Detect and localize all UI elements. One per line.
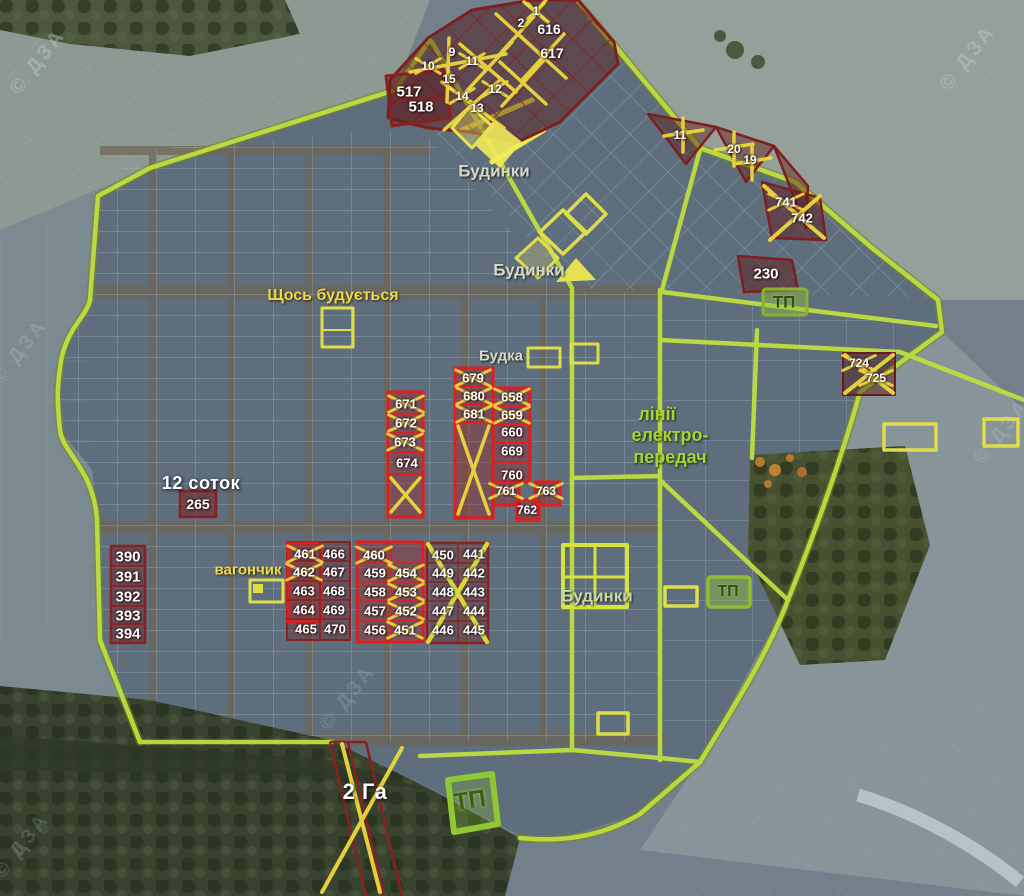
plot-number-518: 518 — [408, 100, 433, 115]
plot-number-763: 763 — [536, 485, 556, 497]
plot-number-14: 14 — [455, 90, 468, 102]
plot-number-679: 679 — [462, 372, 484, 385]
plot-number-469: 469 — [323, 604, 345, 617]
plot-number-13: 13 — [470, 102, 483, 114]
plot-number-741: 741 — [775, 196, 797, 209]
plot-number-724: 724 — [849, 357, 869, 369]
plot-number-760: 760 — [501, 469, 523, 482]
plot-number-443: 443 — [463, 586, 485, 599]
plot-number-467: 467 — [323, 566, 345, 579]
area-label: вагончик — [214, 563, 281, 578]
area-label: Будинки — [493, 262, 565, 279]
area-label: Будка — [479, 349, 523, 364]
plot-number-394: 394 — [115, 627, 140, 642]
plot-number-517: 517 — [396, 85, 421, 100]
plot-number-658: 658 — [501, 391, 523, 404]
plot-number-450: 450 — [432, 549, 454, 562]
area-label: Щось будується — [267, 288, 398, 304]
plot-number-671: 671 — [395, 398, 417, 411]
plot-number-390: 390 — [115, 550, 140, 565]
area-label: електро- — [631, 426, 708, 444]
plot-number-674: 674 — [396, 457, 418, 470]
plot-number-457: 457 — [364, 605, 386, 618]
plot-number-680: 680 — [463, 390, 485, 403]
plot-number-453: 453 — [395, 586, 417, 599]
plot-number-673: 673 — [394, 436, 416, 449]
plot-number-470: 470 — [324, 623, 346, 636]
watermark: © ДЗА — [5, 25, 70, 100]
plot-number-11: 11 — [674, 129, 687, 141]
watermark: © ДЗА — [969, 395, 1024, 470]
plot-number-456: 456 — [364, 624, 386, 637]
plot-number-9: 9 — [449, 46, 456, 58]
plot-number-669: 669 — [501, 445, 523, 458]
plot-number-10: 10 — [421, 60, 434, 72]
plot-number-20: 20 — [727, 143, 740, 155]
plot-number-681: 681 — [463, 408, 485, 421]
plot-number-458: 458 — [364, 586, 386, 599]
plot-number-452: 452 — [395, 605, 417, 618]
plot-number-468: 468 — [323, 585, 345, 598]
area-label: 2 Га — [343, 781, 388, 803]
area-label: Будинки — [458, 163, 530, 180]
plot-number-462: 462 — [293, 566, 315, 579]
plot-number-465: 465 — [295, 623, 317, 636]
plot-number-19: 19 — [743, 154, 756, 166]
plot-number-12: 12 — [488, 83, 501, 95]
area-label: ТП — [453, 787, 488, 815]
plot-number-616: 616 — [537, 22, 560, 36]
watermark: © ДЗА — [935, 21, 1000, 96]
watermark: © ДЗА — [315, 661, 380, 736]
plot-number-454: 454 — [395, 567, 417, 580]
plot-number-762: 762 — [517, 504, 537, 516]
plot-number-446: 446 — [432, 624, 454, 637]
plot-number-230: 230 — [753, 267, 778, 282]
plot-number-441: 441 — [463, 548, 485, 561]
plot-number-444: 444 — [463, 605, 485, 618]
plot-number-447: 447 — [432, 605, 454, 618]
plot-number-742: 742 — [791, 212, 813, 225]
area-label: Будинки — [561, 588, 633, 605]
plot-number-659: 659 — [501, 409, 523, 422]
plot-number-1: 1 — [533, 5, 540, 17]
plot-number-265: 265 — [186, 497, 209, 511]
plot-number-761: 761 — [496, 485, 516, 497]
plot-number-445: 445 — [463, 624, 485, 637]
plot-number-463: 463 — [293, 585, 315, 598]
plot-number-15: 15 — [442, 73, 455, 85]
plot-number-451: 451 — [394, 624, 416, 637]
plot-number-442: 442 — [463, 567, 485, 580]
plot-number-464: 464 — [293, 604, 315, 617]
plot-number-391: 391 — [115, 570, 140, 585]
area-label: передач — [633, 448, 706, 466]
plot-number-466: 466 — [323, 548, 345, 561]
plot-number-672: 672 — [395, 417, 417, 430]
plot-number-449: 449 — [432, 567, 454, 580]
area-label: лінії — [638, 405, 675, 423]
plot-number-393: 393 — [115, 609, 140, 624]
plot-number-11: 11 — [466, 55, 479, 67]
watermark: © ДЗА — [0, 315, 53, 390]
plot-number-461: 461 — [294, 548, 316, 561]
map-label-layer: © ДЗА © ДЗА © ДЗА © ДЗА © ДЗА © ДЗА Буди… — [0, 0, 1024, 896]
plot-number-392: 392 — [115, 590, 140, 605]
plot-number-459: 459 — [364, 567, 386, 580]
area-label: ТП — [717, 584, 738, 600]
plot-number-725: 725 — [866, 372, 886, 384]
watermark: © ДЗА — [0, 809, 55, 884]
plot-number-448: 448 — [432, 586, 454, 599]
plot-number-660: 660 — [501, 426, 523, 439]
area-label: ТП — [773, 294, 796, 311]
area-label: 12 соток — [162, 474, 240, 492]
plot-number-460: 460 — [363, 549, 385, 562]
plot-number-2: 2 — [518, 17, 525, 29]
land-plot-map: © ДЗА © ДЗА © ДЗА © ДЗА © ДЗА © ДЗА Буди… — [0, 0, 1024, 896]
plot-number-617: 617 — [540, 46, 563, 60]
